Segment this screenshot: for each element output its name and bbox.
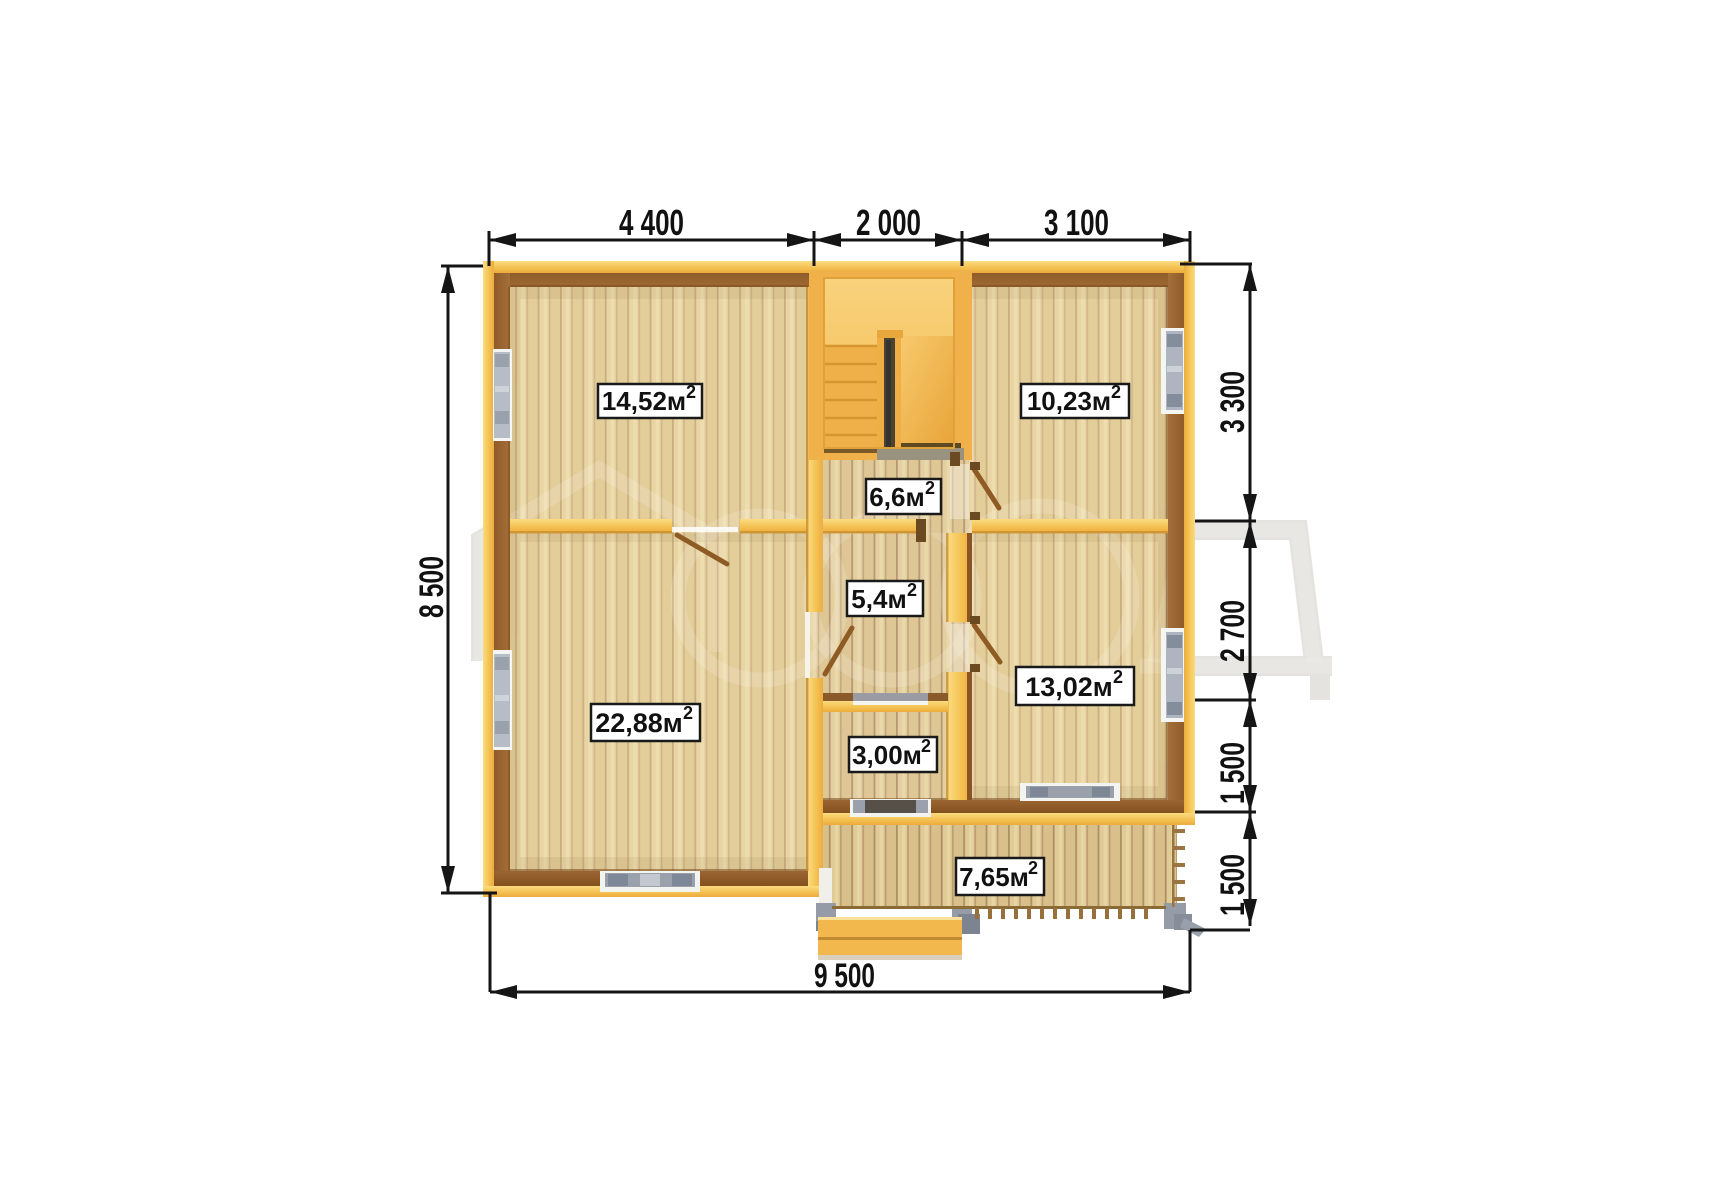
svg-text:22,88м: 22,88м — [595, 708, 683, 738]
svg-text:10,23м: 10,23м — [1027, 386, 1111, 416]
svg-text:6,6м: 6,6м — [869, 482, 924, 512]
svg-text:2 700: 2 700 — [1214, 600, 1252, 662]
svg-text:14,52м: 14,52м — [602, 386, 686, 416]
svg-text:5,4м: 5,4м — [851, 584, 906, 614]
svg-text:3 300: 3 300 — [1214, 371, 1252, 433]
svg-text:1 500: 1 500 — [1214, 742, 1252, 804]
svg-text:8 500: 8 500 — [413, 556, 451, 618]
svg-text:2: 2 — [686, 382, 696, 402]
svg-text:2: 2 — [683, 703, 693, 723]
svg-text:2: 2 — [921, 736, 931, 756]
svg-text:2: 2 — [1113, 667, 1123, 687]
svg-text:3,00м: 3,00м — [852, 740, 922, 770]
svg-text:2: 2 — [1111, 382, 1121, 402]
svg-text:9 500: 9 500 — [814, 957, 875, 995]
svg-text:1 500: 1 500 — [1214, 854, 1252, 916]
svg-text:13,02м: 13,02м — [1025, 672, 1113, 702]
svg-text:2 000: 2 000 — [856, 202, 921, 243]
svg-text:2: 2 — [1028, 858, 1038, 878]
svg-text:3 100: 3 100 — [1044, 202, 1109, 243]
svg-text:4 400: 4 400 — [619, 202, 684, 243]
svg-text:7,65м: 7,65м — [959, 862, 1029, 892]
svg-text:2: 2 — [925, 478, 935, 498]
svg-text:2: 2 — [907, 580, 917, 600]
